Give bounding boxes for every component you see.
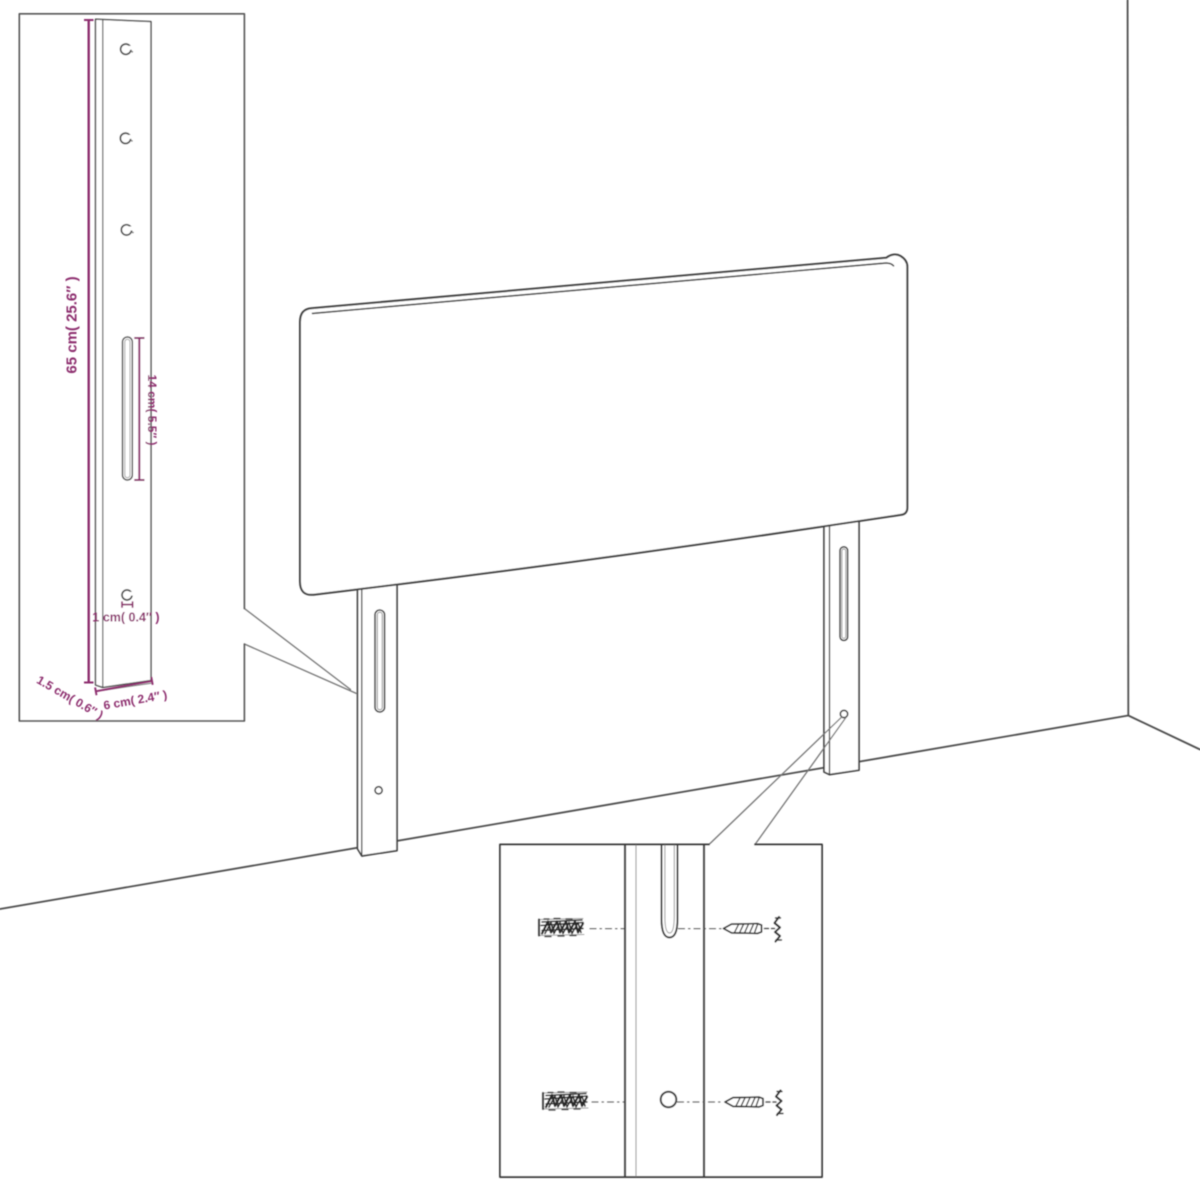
svg-text:65 cm( 25.6″ ): 65 cm( 25.6″ ) [64,276,81,373]
svg-text:14 cm( 5.5″ ): 14 cm( 5.5″ ) [145,374,159,445]
svg-text:6 cm( 2.4″ ): 6 cm( 2.4″ ) [102,688,168,713]
svg-text:1 cm( 0.4″ ): 1 cm( 0.4″ ) [92,611,159,625]
